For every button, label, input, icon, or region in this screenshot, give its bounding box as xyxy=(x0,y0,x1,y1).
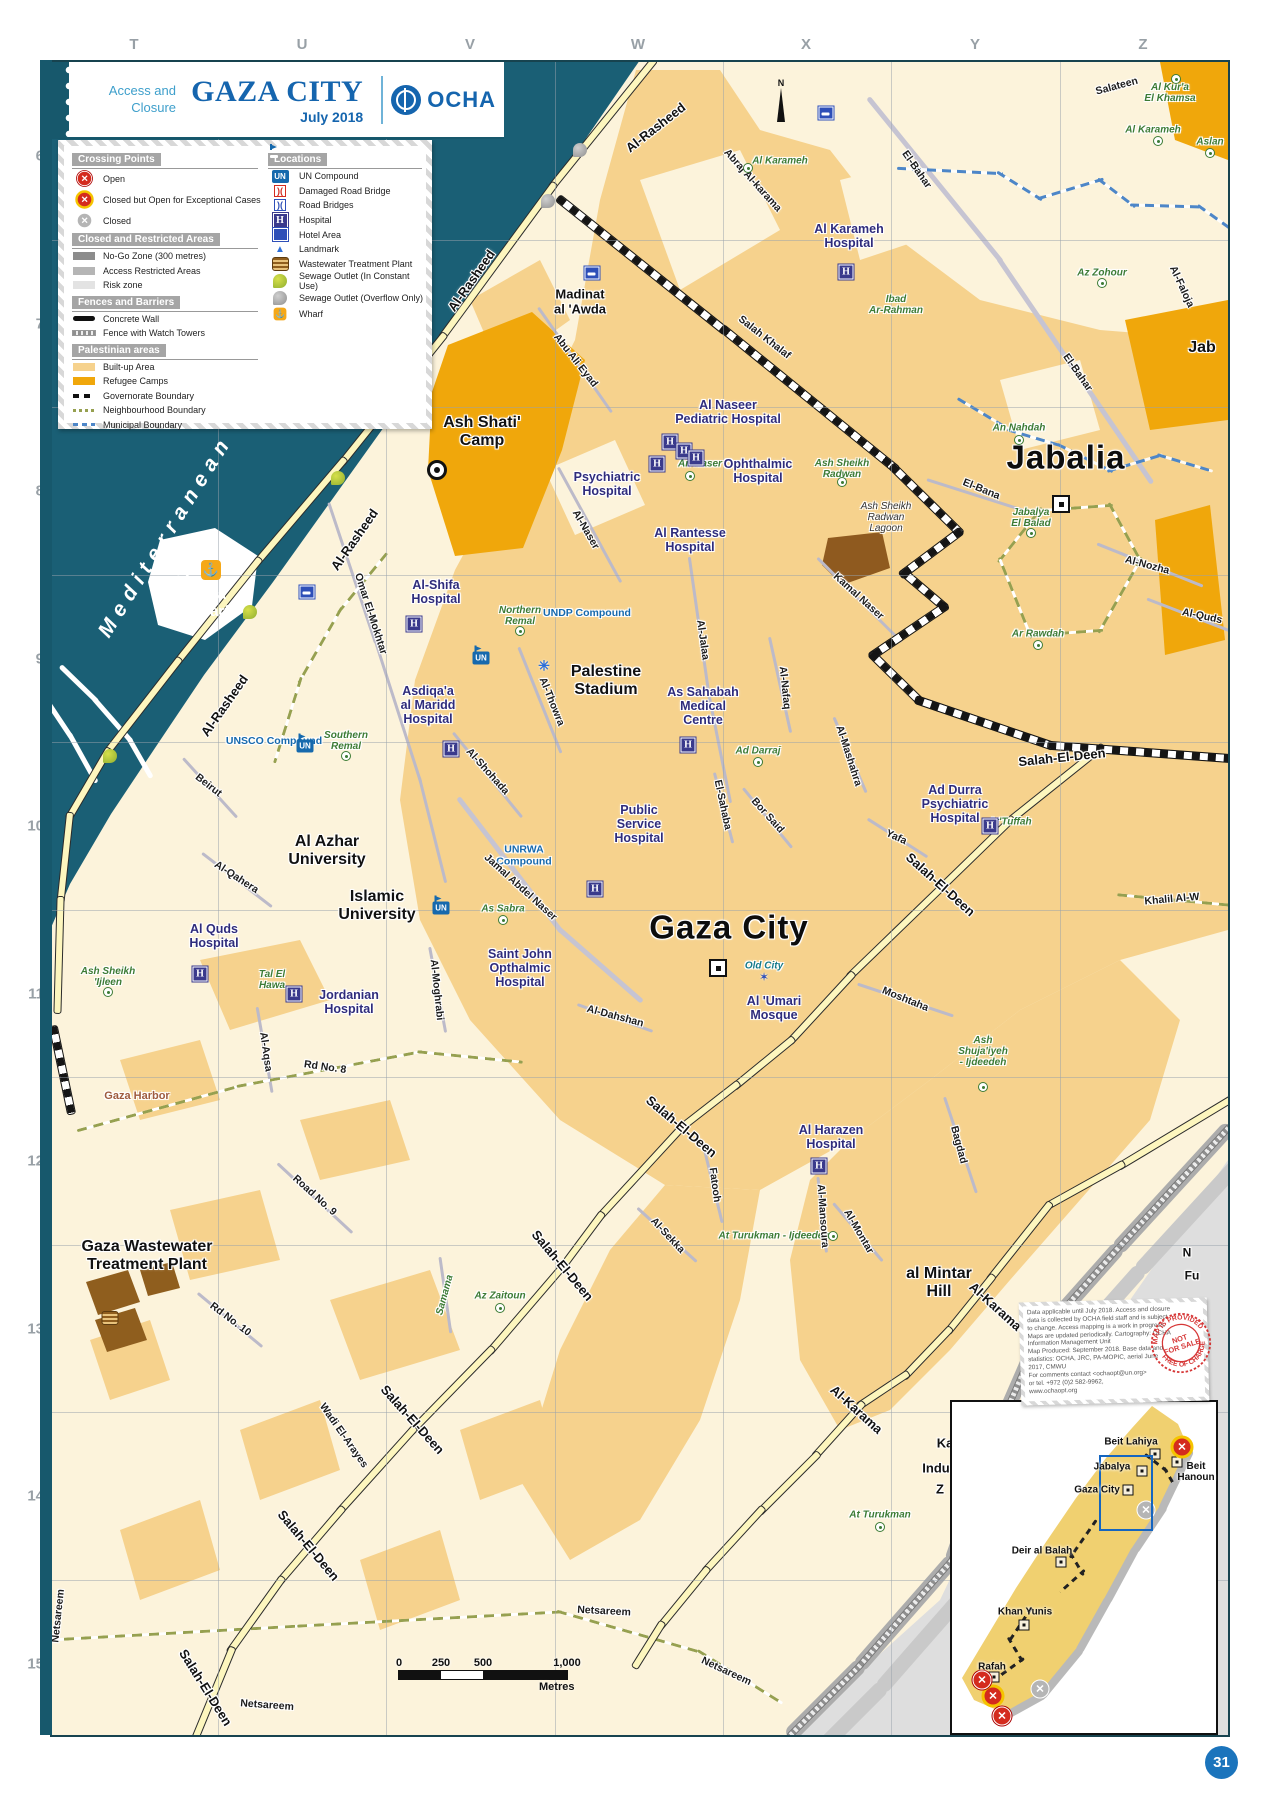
map-date: July 2018 xyxy=(176,109,363,125)
graticule-v3 xyxy=(723,60,724,1735)
page-number-badge: 31 xyxy=(1205,1746,1238,1779)
legend-item-un-compound: UNUN Compound xyxy=(268,169,426,184)
locality-dot-icon xyxy=(495,1303,505,1313)
legend-item-sewage-outlet-in-constant-use: Sewage Outlet (In Constant Use) xyxy=(268,271,426,291)
label-ad-durra-psychiatric-hospital: Ad Durra Psychiatric Hospital xyxy=(922,783,989,825)
label-at-turukman-ijdeedeh: At Turukman - Ijdeedeh xyxy=(719,1230,830,1241)
legend-item-wharf: ⚓Wharf xyxy=(268,306,426,322)
scale-1000: 1,000 xyxy=(553,1657,581,1669)
map-left-edge-decoration xyxy=(40,60,52,1735)
crossing-closed-open-icon: ✕ xyxy=(973,1671,992,1690)
sw-risk-legend-icon xyxy=(72,281,96,289)
label-at-turukman: At Turukman xyxy=(849,1509,911,1520)
map-kicker: Access and Closure xyxy=(81,83,176,116)
label-indu: Indu xyxy=(922,1462,949,1477)
locality-dot-icon xyxy=(828,1231,838,1241)
legend-label-wastewater-treatment-plant: Wastewater Treatment Plant xyxy=(299,259,412,269)
label-al-shifa-hospital: Al-Shifa Hospital xyxy=(411,578,460,606)
label-ash-shati-camp: Ash Shati' Camp xyxy=(443,414,521,450)
locality-dot-icon xyxy=(1205,148,1215,158)
hotel-legend-icon xyxy=(268,228,292,241)
label-northern-remal: Northern Remal xyxy=(499,605,541,627)
scale-500: 500 xyxy=(474,1657,492,1669)
legend-label-access-restricted-areas: Access Restricted Areas xyxy=(103,266,201,276)
landmark-square-icon xyxy=(1052,495,1070,513)
label-deir-al-balah: Deir al Balah xyxy=(1012,1545,1073,1556)
legend-label-fence-with-watch-towers: Fence with Watch Towers xyxy=(103,328,205,338)
wwtp-legend-icon xyxy=(268,257,292,271)
fencew-legend-icon xyxy=(72,330,96,336)
hospital-icon: H xyxy=(663,435,678,450)
camp-center-icon xyxy=(427,460,447,480)
hotel-icon xyxy=(819,107,834,120)
scale-bar: 0 250 500 1,000 Metres xyxy=(398,1668,568,1680)
locality-dot-icon xyxy=(1026,528,1036,538)
legend-label-sewage-outlet-overflow-only: Sewage Outlet (Overflow Only) xyxy=(299,293,423,303)
hospital-icon: H xyxy=(839,265,854,280)
hospital-icon: H xyxy=(407,617,422,632)
sw-camp-legend-icon xyxy=(72,377,96,385)
scale-unit: Metres xyxy=(539,1681,574,1693)
label-rafah: Rafah xyxy=(978,1661,1006,1672)
label-ash-sheikh-radwan-lagoon: Ash Sheikh Radwan Lagoon xyxy=(861,501,912,535)
label-public-service-hospital: Public Service Hospital xyxy=(614,803,663,845)
grid-col-Z: Z xyxy=(1138,36,1147,53)
sw-ara-legend-icon xyxy=(72,267,96,275)
legend-left-column: Crossing Points✕Open✕Closed but Open for… xyxy=(72,150,262,432)
crossgr-legend-icon: ✕ xyxy=(72,211,96,230)
label-ash-shuja-iyeh-ijdeedeh: Ash Shuja'iyeh - Ijdeedeh xyxy=(958,1035,1008,1069)
label-ad-darraj: Ad Darraj xyxy=(735,745,780,756)
hospital-icon: H xyxy=(983,819,998,834)
legend-label-no-go-zone-300-metres: No-Go Zone (300 metres) xyxy=(103,251,206,261)
label-gaza-city: Gaza City xyxy=(649,910,808,947)
locality-dot-icon xyxy=(1033,640,1043,650)
b-muni-legend-icon xyxy=(72,423,96,426)
label-n: N xyxy=(1183,1246,1192,1259)
legend-item-closed: ✕Closed xyxy=(72,211,262,230)
label-az-zaitoun: Az Zaitoun xyxy=(474,1290,525,1301)
legend-label-municipal-boundary: Municipal Boundary xyxy=(103,420,182,430)
legend-item-risk-zone: Risk zone xyxy=(72,278,262,293)
grid-col-U: U xyxy=(297,36,308,53)
hotel-icon xyxy=(585,267,600,280)
legend-label-refugee-camps: Refugee Camps xyxy=(103,376,168,386)
map-title: GAZA CITY xyxy=(176,75,363,109)
scale-bar-graphic: 0 250 500 1,000 Metres xyxy=(398,1670,568,1680)
hospital-icon: H xyxy=(588,882,603,897)
legend-item-road-bridges: )(Road Bridges xyxy=(268,198,426,213)
label-southern-remal: Southern Remal xyxy=(324,730,368,752)
graticule-h5 xyxy=(50,1077,1228,1078)
legend-item-sewage-outlet-overflow-only: Sewage Outlet (Overflow Only) xyxy=(268,291,426,306)
legend-item-no-go-zone-300-metres: No-Go Zone (300 metres) xyxy=(72,249,262,264)
legend-label-concrete-wall: Concrete Wall xyxy=(103,314,159,324)
label-gaza-city: Gaza City xyxy=(1074,1484,1120,1495)
sewage-outlet-constant-icon xyxy=(243,605,257,619)
legend-item-neighbourhood-boundary: Neighbourhood Boundary xyxy=(72,403,262,418)
inset-town-icon xyxy=(1019,1620,1030,1631)
grid-col-T: T xyxy=(129,36,138,53)
locality-dot-icon xyxy=(341,751,351,761)
un-compound-icon: UN xyxy=(433,902,450,915)
hospital-icon: H xyxy=(689,451,704,466)
label-as-sabra: As Sabra xyxy=(481,903,524,914)
label-jab: Jab xyxy=(1188,339,1216,357)
legend-label-sewage-outlet-in-constant-use: Sewage Outlet (In Constant Use) xyxy=(299,271,426,291)
sw-built-legend-icon xyxy=(72,363,96,371)
legend-section-palestinian-areas: Palestinian areas xyxy=(72,341,262,359)
legend-label-governorate-boundary: Governorate Boundary xyxy=(103,391,194,401)
label-beit-hanoun: Beit Hanoun xyxy=(1177,1461,1214,1483)
grid-col-V: V xyxy=(465,36,475,53)
hospital-icon: H xyxy=(650,457,665,472)
scale-0: 0 xyxy=(396,1657,402,1669)
label-fu: Fu xyxy=(1185,1269,1200,1282)
stadium-landmark-icon: ✳ xyxy=(538,658,550,675)
locality-dot-icon xyxy=(1171,74,1181,84)
b-neigh-legend-icon xyxy=(72,409,96,412)
label-as-sahabah-medical-centre: As Sahabah Medical Centre xyxy=(667,685,739,727)
b-gov-legend-icon xyxy=(72,394,96,398)
legend-section-locations: Locations xyxy=(268,150,426,168)
legend-label-risk-zone: Risk zone xyxy=(103,280,143,290)
graticule-h4 xyxy=(50,910,1228,911)
legend-section-closed-and-restricted-areas: Closed and Restricted Areas xyxy=(72,230,262,248)
legend-label-hospital: Hospital xyxy=(299,215,332,225)
legend-header-palestinian-areas: Palestinian areas xyxy=(72,344,166,357)
legend-item-wastewater-treatment-plant: Wastewater Treatment Plant xyxy=(268,257,426,272)
crossy-legend-icon: ✕ xyxy=(72,188,96,211)
sewgray-legend-icon xyxy=(268,291,292,305)
legend-item-built-up-area: Built-up Area xyxy=(72,360,262,375)
locality-dot-icon xyxy=(753,757,763,767)
label-al-karameh: Al Karameh xyxy=(1125,124,1181,135)
label-al-umari-mosque: Al 'Umari Mosque xyxy=(747,994,801,1022)
sewage-outlet-overflow-icon xyxy=(573,143,587,157)
label-asdiqa-a-al-maridd-hospital: Asdiqa'a al Maridd Hospital xyxy=(401,684,456,726)
wall-legend-icon xyxy=(72,316,96,321)
hospital-icon: H xyxy=(287,987,302,1002)
graticule-h6 xyxy=(50,1245,1228,1246)
label-gaza-wharf: Gaza Wharf xyxy=(187,587,230,621)
un-compound-icon: UN xyxy=(473,652,490,665)
legend-item-governorate-boundary: Governorate Boundary xyxy=(72,389,262,404)
hosp-legend-icon: H xyxy=(268,213,292,228)
label-al-rantesse-hospital: Al Rantesse Hospital xyxy=(654,526,726,554)
label-az-zohour: Az Zohour xyxy=(1077,267,1126,278)
locality-dot-icon xyxy=(1097,278,1107,288)
label-beit-lahiya: Beit Lahiya xyxy=(1104,1436,1157,1447)
scale-seg-1 xyxy=(399,1671,441,1679)
title-banner: Access and Closure GAZA CITY July 2018 O… xyxy=(52,62,504,139)
ocha-logo-text: OCHA xyxy=(427,87,496,113)
label-ash-sheikh-ijleen: Ash Sheikh 'Ijleen xyxy=(81,966,135,988)
grid-col-W: W xyxy=(631,36,645,53)
bridge-blue-legend-icon: )( xyxy=(268,199,292,211)
legend-item-hotel-area: Hotel Area xyxy=(268,228,426,243)
label-al-karameh: Al Karameh xyxy=(752,155,808,166)
legend-label-hotel-area: Hotel Area xyxy=(299,230,341,240)
label-saint-john-opthalmic-hospital: Saint John Opthalmic Hospital xyxy=(488,947,552,989)
legend-header-crossing-points: Crossing Points xyxy=(72,153,161,166)
legend-section-crossing-points: Crossing Points xyxy=(72,150,262,168)
label-ar-rawdah: Ar Rawdah xyxy=(1012,628,1064,639)
legend-item-hospital: HHospital xyxy=(268,213,426,228)
legend-label-damaged-road-bridge: Damaged Road Bridge xyxy=(299,186,391,196)
scale-seg-2 xyxy=(483,1671,567,1679)
sewage-outlet-constant-icon xyxy=(331,471,345,485)
grid-col-X: X xyxy=(801,36,811,53)
legend-box: Crossing Points✕Open✕Closed but Open for… xyxy=(58,140,432,429)
label-jabalya-el-balad: Jabalya El Balad xyxy=(1011,507,1050,529)
label-tal-el-hawa: Tal El Hawa xyxy=(259,969,285,991)
locality-dot-icon xyxy=(837,477,847,487)
banner-scallop-edge xyxy=(52,62,69,137)
legend-label-road-bridges: Road Bridges xyxy=(299,200,354,210)
legend-label-neighbourhood-boundary: Neighbourhood Boundary xyxy=(103,405,206,415)
landmark-legend-icon: ▲ xyxy=(268,244,292,255)
label-gaza-wastewater-treatment-plant: Gaza Wastewater Treatment Plant xyxy=(81,1238,212,1274)
label-jordanian-hospital: Jordanian Hospital xyxy=(319,988,379,1016)
legend-item-closed-but-open-for-exceptional-cases: ✕Closed but Open for Exceptional Cases xyxy=(72,188,262,211)
legend-item-open: ✕Open xyxy=(72,169,262,188)
label-jabalya: Jabalya xyxy=(1094,1461,1131,1472)
scale-250: 250 xyxy=(432,1657,450,1669)
legend-label-landmark: Landmark xyxy=(299,244,339,254)
label-al-azhar-university: Al Azhar University xyxy=(288,833,365,869)
label-al-naseer-pediatric-hospital: Al Naseer Pediatric Hospital xyxy=(675,398,781,426)
legend-item-concrete-wall: Concrete Wall xyxy=(72,312,262,327)
sw-nogo-legend-icon xyxy=(72,252,96,260)
locality-dot-icon xyxy=(1153,136,1163,146)
north-arrow-icon: N xyxy=(777,78,785,122)
legend-label-un-compound: UN Compound xyxy=(299,171,359,181)
locality-dot-icon xyxy=(515,626,525,636)
label-al-karameh-hospital: Al Karameh Hospital xyxy=(814,222,883,250)
legend-item-municipal-boundary: Municipal Boundary xyxy=(72,418,262,433)
label-jabalia: Jabalia xyxy=(1007,440,1126,477)
locality-dot-icon xyxy=(875,1522,885,1532)
legend-section-fences-and-barriers: Fences and Barriers xyxy=(72,293,262,311)
old-city-star-icon: ✶ xyxy=(759,970,769,984)
legend-label-closed-but-open-for-exceptional-cases: Closed but Open for Exceptional Cases xyxy=(103,195,261,205)
label-madinat-al-awda: Madinat al 'Awda xyxy=(554,287,606,316)
landmark-square-icon xyxy=(709,959,727,977)
legend-label-open: Open xyxy=(103,174,125,184)
label-al-mintar-hill: al Mintar Hill xyxy=(906,1265,972,1301)
label-gaza-harbor: Gaza Harbor xyxy=(104,1090,169,1102)
un-compound-icon: UN xyxy=(297,740,314,753)
hospital-icon: H xyxy=(681,738,696,753)
label-ophthalmic-hospital: Ophthalmic Hospital xyxy=(724,457,793,485)
locality-dot-icon xyxy=(743,163,753,173)
crossr-legend-icon: ✕ xyxy=(72,169,96,188)
locality-dot-icon xyxy=(498,915,508,925)
graticule-h2 xyxy=(50,575,1228,576)
hospital-icon: H xyxy=(444,742,459,757)
legend-inner: Crossing Points✕Open✕Closed but Open for… xyxy=(64,146,426,423)
hospital-icon: H xyxy=(193,967,208,982)
title-block: GAZA CITY July 2018 xyxy=(176,75,373,125)
wastewater-plant-icon xyxy=(102,1311,119,1325)
grid-col-Y: Y xyxy=(970,36,980,53)
hospital-icon: H xyxy=(812,1159,827,1174)
label-khan-yunis: Khan Yunis xyxy=(998,1606,1052,1617)
un-emblem-icon xyxy=(391,85,421,115)
locality-dot-icon xyxy=(1014,435,1024,445)
sewage-outlet-constant-icon xyxy=(103,749,117,763)
locality-dot-icon xyxy=(685,471,695,481)
crossing-closed-open-icon: ✕ xyxy=(993,1707,1012,1726)
label-ibad-ar-rahman: Ibad Ar-Rahman xyxy=(869,294,923,316)
hotel-icon xyxy=(300,586,315,599)
inset-town-icon xyxy=(1056,1557,1067,1568)
sewg-legend-icon xyxy=(268,274,292,288)
wharf-legend-icon: ⚓ xyxy=(268,306,292,322)
label-islamic-university: Islamic University xyxy=(338,888,415,924)
label-al-quds-hospital: Al Quds Hospital xyxy=(189,922,238,950)
locality-dot-icon xyxy=(103,987,113,997)
legend-item-damaged-road-bridge: )(Damaged Road Bridge xyxy=(268,184,426,199)
label-an-nahdah: An Nahdah xyxy=(993,422,1046,433)
legend-header-closed-and-restricted-areas: Closed and Restricted Areas xyxy=(72,233,220,246)
legend-item-fence-with-watch-towers: Fence with Watch Towers xyxy=(72,326,262,341)
legend-locations-column: LocationsUNUN Compound)(Damaged Road Bri… xyxy=(268,150,426,322)
legend-label-built-up-area: Built-up Area xyxy=(103,362,155,372)
label-al-harazen-hospital: Al Harazen Hospital xyxy=(799,1123,864,1151)
legend-header-fences-and-barriers: Fences and Barriers xyxy=(72,296,180,309)
label-al-kur-a-el-khamsa: Al Kur'a El Khamsa xyxy=(1144,82,1195,104)
sewage-outlet-overflow-icon xyxy=(541,194,555,208)
locality-dot-icon xyxy=(978,1082,988,1092)
legend-item-access-restricted-areas: Access Restricted Areas xyxy=(72,264,262,279)
legend-label-wharf: Wharf xyxy=(299,309,323,319)
bridge-red-legend-icon: )( xyxy=(268,185,292,197)
legend-label-closed: Closed xyxy=(103,216,131,226)
map-page: Mediterranean SeaGaza WharfGaza HarborJa… xyxy=(0,0,1280,1811)
crossing-closed-icon: ✕ xyxy=(1031,1680,1050,1699)
un-legend-icon: UN xyxy=(268,170,292,183)
label-undp-compound: UNDP Compound xyxy=(543,608,631,620)
label-aslan: Aslan xyxy=(1196,136,1223,147)
legend-item-refugee-camps: Refugee Camps xyxy=(72,374,262,389)
legend-item-landmark: ▲Landmark xyxy=(268,242,426,257)
label-psychiatric-hospital: Psychiatric Hospital xyxy=(574,470,641,498)
label-palestine-stadium: Palestine Stadium xyxy=(571,663,641,699)
crossing-exceptional-icon: ✕ xyxy=(1171,1436,1194,1459)
wharf-anchor-icon: ⚓ xyxy=(201,560,221,580)
label-z: Z xyxy=(936,1483,944,1498)
banner-divider xyxy=(381,76,383,124)
